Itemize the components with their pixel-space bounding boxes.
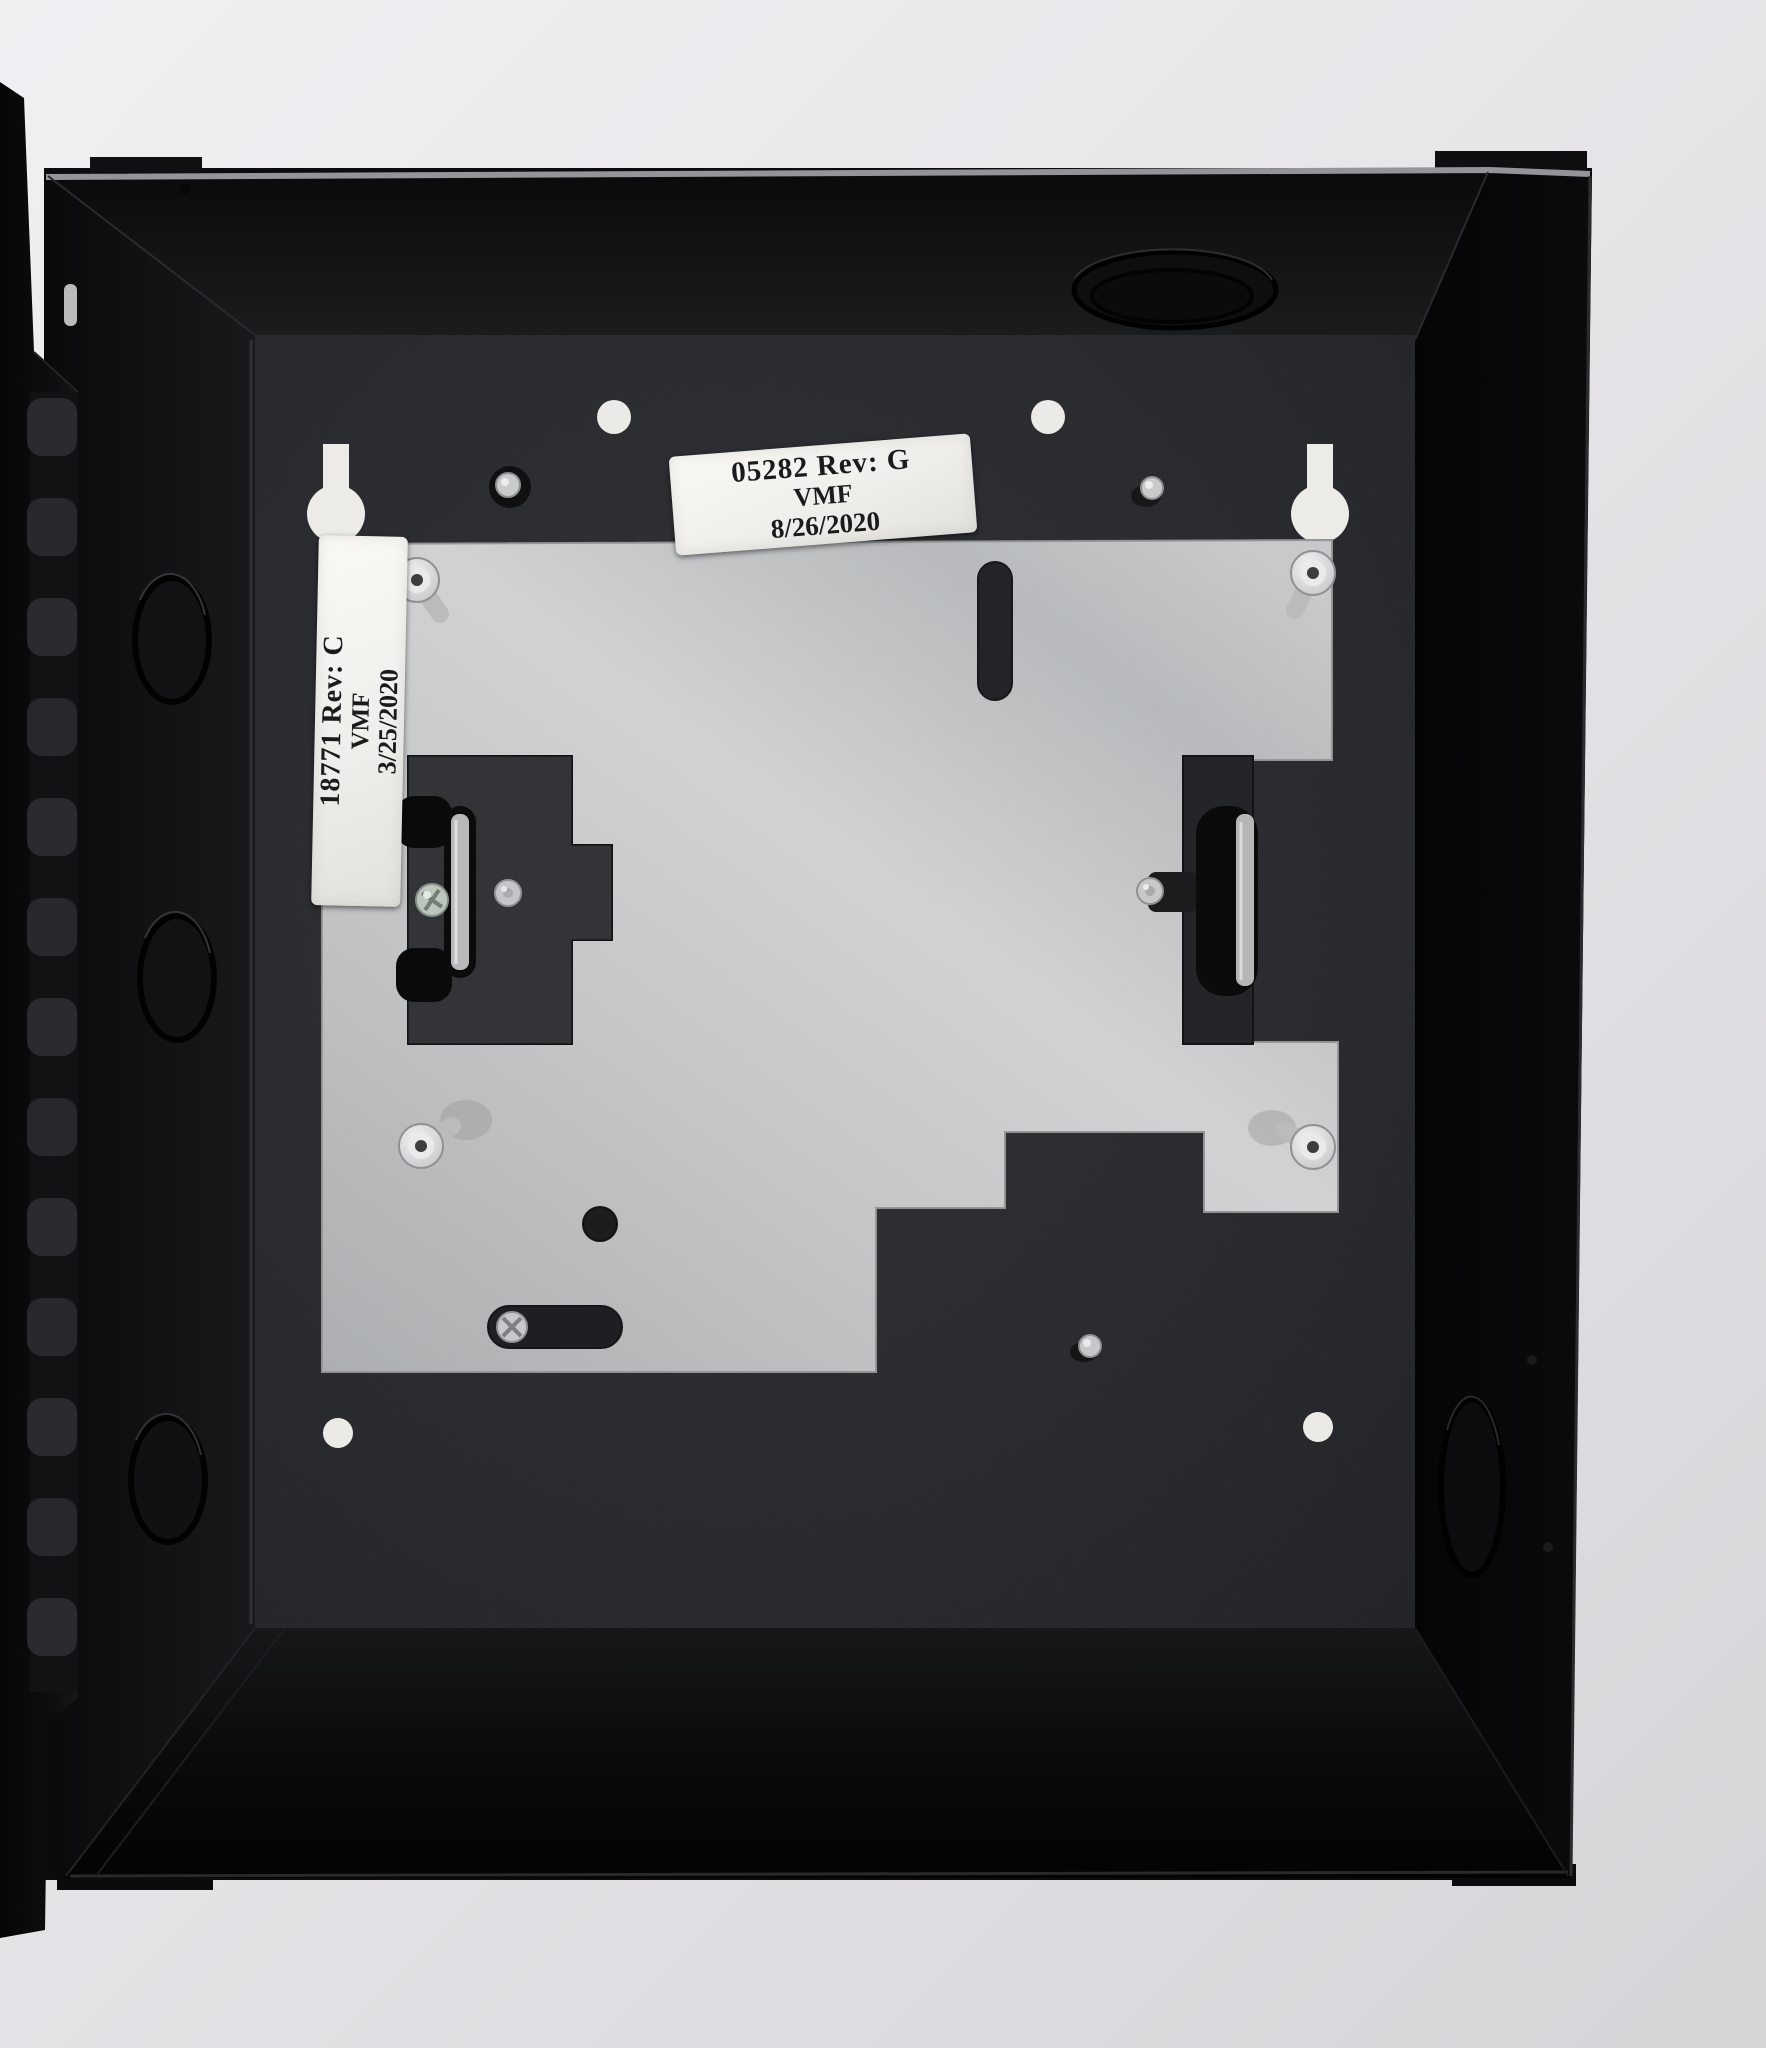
bracket-rivet [495, 880, 521, 906]
bracket-rail [1236, 814, 1254, 986]
mounting-hole [1031, 400, 1065, 434]
top-wall-pilot-hole [180, 184, 190, 194]
knockout-right-wall [1441, 1397, 1503, 1575]
mounting-tab [90, 157, 202, 173]
hinge-knuckle [27, 1298, 77, 1356]
enclosure-photo [0, 0, 1766, 2048]
spec-label-side-initials: VMF [346, 692, 374, 749]
top-wall [44, 168, 1490, 340]
spec-label-side: 18771 Rev: C VMF 3/25/2020 [311, 535, 408, 907]
bracket-clip-tab [396, 796, 452, 848]
bracket-screw [416, 884, 448, 916]
panel-rivet [489, 466, 531, 508]
slot-screw [497, 1312, 527, 1342]
plate-round-hole [583, 1207, 617, 1241]
spec-label-top-date: 8/26/2020 [770, 505, 882, 544]
knockout-top-wall [1074, 249, 1276, 328]
spec-label-side-rotated-text: 18771 Rev: C VMF 3/25/2020 [311, 535, 408, 907]
spec-label-side-date: 3/25/2020 [373, 669, 403, 775]
spec-label-side-part-number: 18771 Rev: C [315, 634, 349, 807]
hinge-knuckle [27, 1098, 77, 1156]
hinge-knuckle [27, 1198, 77, 1256]
plate-vertical-slot [978, 562, 1012, 700]
bracket-rail [451, 814, 469, 970]
knockout-left-wall-1 [135, 574, 209, 702]
hinge [27, 392, 78, 1692]
hinge-knuckle [27, 798, 77, 856]
bottom-wall [63, 1628, 1570, 1878]
bracket-clip-tab [396, 948, 452, 1002]
mounting-hole [597, 400, 631, 434]
mounting-hole [323, 1418, 353, 1448]
hinge-knuckle [27, 698, 77, 756]
hinge-knuckle [27, 498, 77, 556]
hinge-knuckle [27, 1498, 77, 1556]
hinge-pin [64, 284, 77, 326]
hinge-knuckle [27, 1398, 77, 1456]
bracket-screw [1137, 878, 1163, 904]
right-wall-pilot-hole [1543, 1542, 1553, 1552]
right-wall [1415, 168, 1592, 1878]
hinge-knuckle [27, 598, 77, 656]
hinge-knuckle [27, 898, 77, 956]
hinge-knuckle [27, 1598, 77, 1656]
photo-stage: 05282 Rev: G VMF 8/26/2020 18771 Rev: C … [0, 0, 1766, 2048]
mounting-hole [1303, 1412, 1333, 1442]
hinge-knuckle [27, 998, 77, 1056]
knockout-left-wall-2 [140, 912, 214, 1040]
knockout-left-wall-3 [131, 1414, 205, 1542]
hinge-knuckle [27, 398, 77, 456]
right-wall-pilot-hole [1527, 1355, 1537, 1365]
